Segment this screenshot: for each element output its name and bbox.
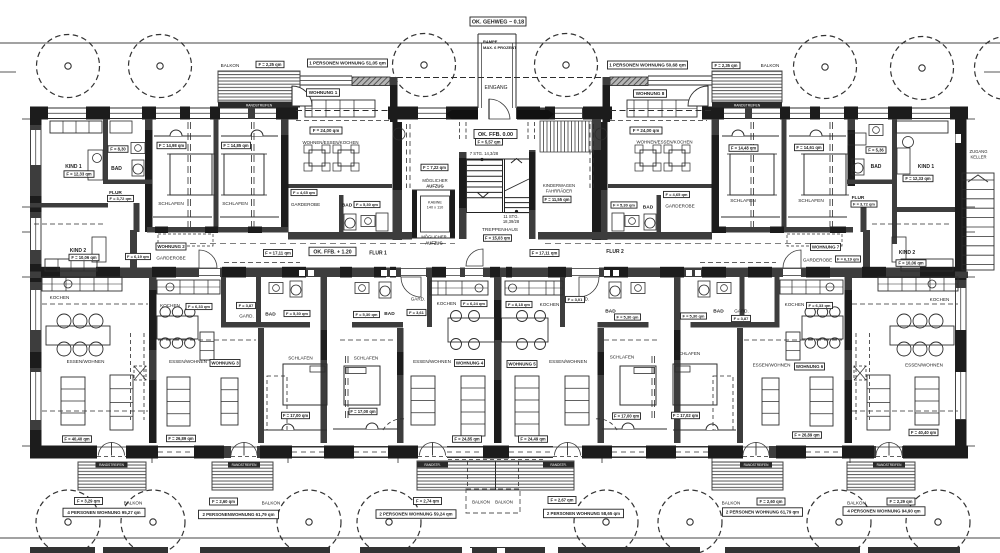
svg-text:GARDEROBE: GARDEROBE [291,202,320,207]
svg-text:KOCHEN: KOCHEN [437,301,457,306]
svg-text:WOHNEN/ESSEN/KOCHEN: WOHNEN/ESSEN/KOCHEN [302,140,358,145]
svg-text:F = 6,24 qm: F = 6,24 qm [463,301,485,306]
svg-text:2 PERSONEN WOHNUNG 59,24 qm: 2 PERSONEN WOHNUNG 59,24 qm [379,512,452,517]
svg-text:RANDSTR.: RANDSTR. [550,463,566,467]
svg-text:F = 14,98 qm: F = 14,98 qm [159,143,185,148]
svg-text:ZUGANG: ZUGANG [970,149,988,154]
svg-text:BALKON: BALKON [722,501,741,506]
svg-text:F = 24,49 qm: F = 24,49 qm [520,437,546,442]
svg-text:KELLER: KELLER [970,155,986,160]
svg-text:SCHLAFEN: SCHLAFEN [610,355,635,360]
svg-text:F = 17,11 qm: F = 17,11 qm [532,251,558,256]
svg-text:RANDSTREIFEN: RANDSTREIFEN [734,104,761,108]
svg-text:SCHLAFEN: SCHLAFEN [222,201,248,207]
svg-text:RANDSTREIFEN: RANDSTREIFEN [232,463,257,467]
svg-text:BALKON: BALKON [124,501,143,506]
svg-text:F = 2,60 qm: F = 2,60 qm [760,499,783,504]
svg-text:F = 4,65 qm: F = 4,65 qm [293,190,315,195]
svg-text:SCHLAFEN: SCHLAFEN [676,351,701,356]
svg-text:BALKON: BALKON [221,63,240,68]
svg-text:4 PERSONEN WOHNUNG 94,90 qm: 4 PERSONEN WOHNUNG 94,90 qm [847,509,920,514]
svg-text:4 PERSONEN WOHNUNG 95,27 qm: 4 PERSONEN WOHNUNG 95,27 qm [67,510,140,515]
svg-text:TREPPENHAUS: TREPPENHAUS [482,227,518,233]
svg-text:ESSEN/WOHNEN: ESSEN/WOHNEN [905,363,943,368]
svg-text:F = 3,61: F = 3,61 [409,310,425,315]
svg-text:MÖGLICHER: MÖGLICHER [422,178,447,183]
svg-text:OK. GEHWEG − 0.18: OK. GEHWEG − 0.18 [472,19,524,25]
svg-text:KOCHEN: KOCHEN [50,295,70,300]
svg-text:WOHNUNG 4: WOHNUNG 4 [456,361,484,366]
svg-text:BALKON: BALKON [847,501,866,506]
svg-text:BAD: BAD [713,309,724,315]
svg-text:F = 2,60 qm: F = 2,60 qm [212,499,235,504]
svg-text:F = 2,29 qm: F = 2,29 qm [890,499,913,504]
svg-text:WOHNUNG 8: WOHNUNG 8 [636,91,665,96]
svg-text:F = 5,30 qm: F = 5,30 qm [683,313,705,318]
svg-text:RANDSTR.: RANDSTR. [424,463,440,467]
svg-text:F = 26,89 qm: F = 26,89 qm [168,436,194,441]
svg-text:F = 17,00 qm: F = 17,00 qm [283,413,309,418]
svg-text:RANDSTREIFEN: RANDSTREIFEN [877,463,902,467]
svg-text:ESSEN/WOHNEN: ESSEN/WOHNEN [549,359,587,364]
svg-text:BALKON: BALKON [495,500,513,505]
svg-text:7 STG. 14,3/28: 7 STG. 14,3/28 [470,151,499,156]
svg-text:F = 5,36: F = 5,36 [868,148,884,153]
svg-text:KOCHEN: KOCHEN [930,297,950,302]
svg-text:F = 6,19 qm: F = 6,19 qm [127,254,149,259]
svg-text:F = 5,57 qm: F = 5,57 qm [478,139,501,144]
svg-text:WOHNUNG 3: WOHNUNG 3 [211,361,239,366]
svg-text:KOCHEN: KOCHEN [785,302,805,307]
svg-text:GARDEROBE: GARDEROBE [156,256,185,261]
svg-text:RANDSTREIFEN: RANDSTREIFEN [744,463,769,467]
svg-text:18,39/28: 18,39/28 [503,219,520,224]
svg-text:RANDSTREIFEN: RANDSTREIFEN [99,463,124,467]
svg-text:BAD: BAD [871,164,882,170]
svg-text:KIND 1: KIND 1 [918,164,935,170]
svg-text:RANDSTREIFEN: RANDSTREIFEN [246,104,273,108]
svg-text:WOHNUNG 7: WOHNUNG 7 [812,245,840,250]
svg-text:F = 26,89 qm: F = 26,89 qm [794,433,820,438]
svg-text:1 PERSONEN WOHNUNG 51,05 qm: 1 PERSONEN WOHNUNG 51,05 qm [309,61,386,66]
svg-text:F = 17,11 qm: F = 17,11 qm [265,251,291,256]
svg-text:AUFZUG: AUFZUG [425,241,442,246]
svg-text:ESSEN/WOHNEN: ESSEN/WOHNEN [413,359,451,364]
svg-text:KIND 1: KIND 1 [65,164,82,170]
svg-text:F = 5,30 qm: F = 5,30 qm [617,314,639,319]
svg-text:2 PERSONENWOHNUNG 61,79 qm: 2 PERSONENWOHNUNG 61,79 qm [203,512,275,517]
svg-text:WOHNUNG 1: WOHNUNG 1 [309,90,338,95]
svg-text:F = 6,33 qm: F = 6,33 qm [809,303,831,308]
svg-text:F = 2,67 qm: F = 2,67 qm [551,498,574,503]
svg-text:WOHNUNG 2: WOHNUNG 2 [157,244,185,249]
svg-text:F = 5,30 qm: F = 5,30 qm [356,202,378,207]
svg-text:SCHLAFEN: SCHLAFEN [354,356,379,361]
svg-text:EINGANG: EINGANG [484,85,507,91]
svg-text:BALKON: BALKON [761,63,780,68]
svg-text:F = 3,72 qm: F = 3,72 qm [110,196,132,201]
svg-text:WOHNUNG 6: WOHNUNG 6 [796,364,824,369]
svg-text:ESSEN/WOHNEN: ESSEN/WOHNEN [169,359,207,364]
svg-text:BAD: BAD [643,205,654,211]
svg-text:BAD: BAD [384,311,395,317]
svg-text:F = 8,18 qm: F = 8,18 qm [508,302,530,307]
svg-text:F = 24,00 qm: F = 24,00 qm [313,128,340,133]
svg-text:F = 3,72 qm: F = 3,72 qm [853,201,875,206]
svg-text:SCHLAFEN: SCHLAFEN [158,201,184,207]
svg-text:BALKON: BALKON [262,501,281,506]
svg-text:KIND 2: KIND 2 [899,250,916,256]
svg-text:F = 10,06 qm: F = 10,06 qm [71,255,97,260]
svg-text:F = 12,33 qm: F = 12,33 qm [905,176,931,181]
svg-text:KOCHEN: KOCHEN [160,303,180,308]
svg-text:WOHNUNG 5: WOHNUNG 5 [508,362,536,367]
svg-text:GARD.: GARD. [411,297,426,302]
svg-text:F = 2,35 qm: F = 2,35 qm [715,63,738,68]
svg-text:RAMPE: RAMPE [483,39,498,44]
svg-text:F = 11,55 qm: F = 11,55 qm [544,197,569,202]
svg-text:F = 3,87: F = 3,87 [239,303,255,308]
svg-text:KIND 2: KIND 2 [70,248,87,254]
svg-text:2 PERSONEN WOHNUNG 58,65 qm: 2 PERSONEN WOHNUNG 58,65 qm [547,511,620,516]
svg-text:GARDEROBE: GARDEROBE [803,258,832,263]
svg-text:SCHLAFEN: SCHLAFEN [730,198,756,204]
svg-text:GARDEROBE: GARDEROBE [665,204,694,209]
svg-text:OK. FFB. + 1.20: OK. FFB. + 1.20 [313,249,351,255]
svg-text:F = 17,00 qm: F = 17,00 qm [350,409,376,414]
svg-text:F = 14,85 qm: F = 14,85 qm [223,143,249,148]
svg-text:FAHRRÄDER: FAHRRÄDER [546,189,573,194]
svg-text:F = 10,06 qm: F = 10,06 qm [898,261,924,266]
svg-text:OK. FFB. 0.00: OK. FFB. 0.00 [478,132,513,138]
svg-text:F = 40,40 qm: F = 40,40 qm [64,437,90,442]
svg-text:KINDERWAGEN: KINDERWAGEN [543,183,575,188]
svg-text:ESSEN/WOHNEN: ESSEN/WOHNEN [67,359,105,364]
svg-text:BALKON: BALKON [472,500,490,505]
svg-text:ESSEN/WOHNEN: ESSEN/WOHNEN [753,363,791,368]
svg-text:BAD: BAD [342,203,353,209]
svg-text:F = 40,40 qm: F = 40,40 qm [911,430,937,435]
svg-text:MAX. 6 PROZENT: MAX. 6 PROZENT [483,45,517,50]
svg-text:F = 24,85 qm: F = 24,85 qm [454,437,480,442]
svg-text:FLUR: FLUR [852,195,865,201]
svg-text:FLUR 2: FLUR 2 [606,249,624,255]
svg-text:F = 3,87: F = 3,87 [734,316,750,321]
svg-text:F = 5,30 qm: F = 5,30 qm [286,311,308,316]
svg-text:FLUR 1: FLUR 1 [369,251,387,257]
svg-text:MÖGLICHER: MÖGLICHER [421,235,446,240]
svg-text:F = 15,03 qm: F = 15,03 qm [485,236,511,241]
svg-text:2 PERSONEN WOHNUNG 61,79 qm: 2 PERSONEN WOHNUNG 61,79 qm [726,510,799,515]
svg-text:F = 6,19 qm: F = 6,19 qm [837,256,859,261]
svg-text:SCHLAFEN: SCHLAFEN [288,356,313,361]
svg-text:140 x 110: 140 x 110 [427,206,443,210]
svg-text:1 PERSONEN WOHNUNG 50,68 qm: 1 PERSONEN WOHNUNG 50,68 qm [609,63,686,68]
svg-text:KABINE: KABINE [428,201,442,205]
svg-text:BAD: BAD [265,312,276,318]
svg-text:KOCHEN: KOCHEN [540,302,560,307]
svg-text:GARD.: GARD. [239,314,254,319]
svg-text:WOHNEN/ESSEN/KOCHEN: WOHNEN/ESSEN/KOCHEN [636,140,692,145]
svg-text:F = 17,02 qm: F = 17,02 qm [673,413,699,418]
svg-text:F = 8,30: F = 8,30 [110,147,126,152]
svg-text:F = 4,65 qm: F = 4,65 qm [666,192,688,197]
svg-text:F = 5,30 qm: F = 5,30 qm [613,202,635,207]
svg-text:F = 7,22 qm: F = 7,22 qm [423,165,446,170]
svg-text:F = 2,74 qm: F = 2,74 qm [416,499,439,504]
svg-text:F = 14,48 qm: F = 14,48 qm [731,146,757,151]
svg-text:SCHLAFEN: SCHLAFEN [798,198,824,204]
svg-text:F = 24,00 qm: F = 24,00 qm [633,128,660,133]
svg-text:F = 14,61 qm: F = 14,61 qm [796,145,822,150]
svg-text:F = 17,00 qm: F = 17,00 qm [614,414,640,419]
svg-text:GARD.: GARD. [734,309,749,314]
svg-text:F = 6,33 qm: F = 6,33 qm [188,304,210,309]
svg-text:F = 5,30 qm: F = 5,30 qm [356,312,378,317]
svg-text:AUFZUG: AUFZUG [426,184,443,189]
svg-text:F = 12,33 qm: F = 12,33 qm [66,172,92,177]
svg-text:F = 3,01: F = 3,01 [568,297,584,302]
svg-text:F = 3,29 qm: F = 3,29 qm [77,499,100,504]
svg-text:BAD: BAD [111,166,122,172]
svg-text:F = 2,25 qm: F = 2,25 qm [259,62,282,67]
